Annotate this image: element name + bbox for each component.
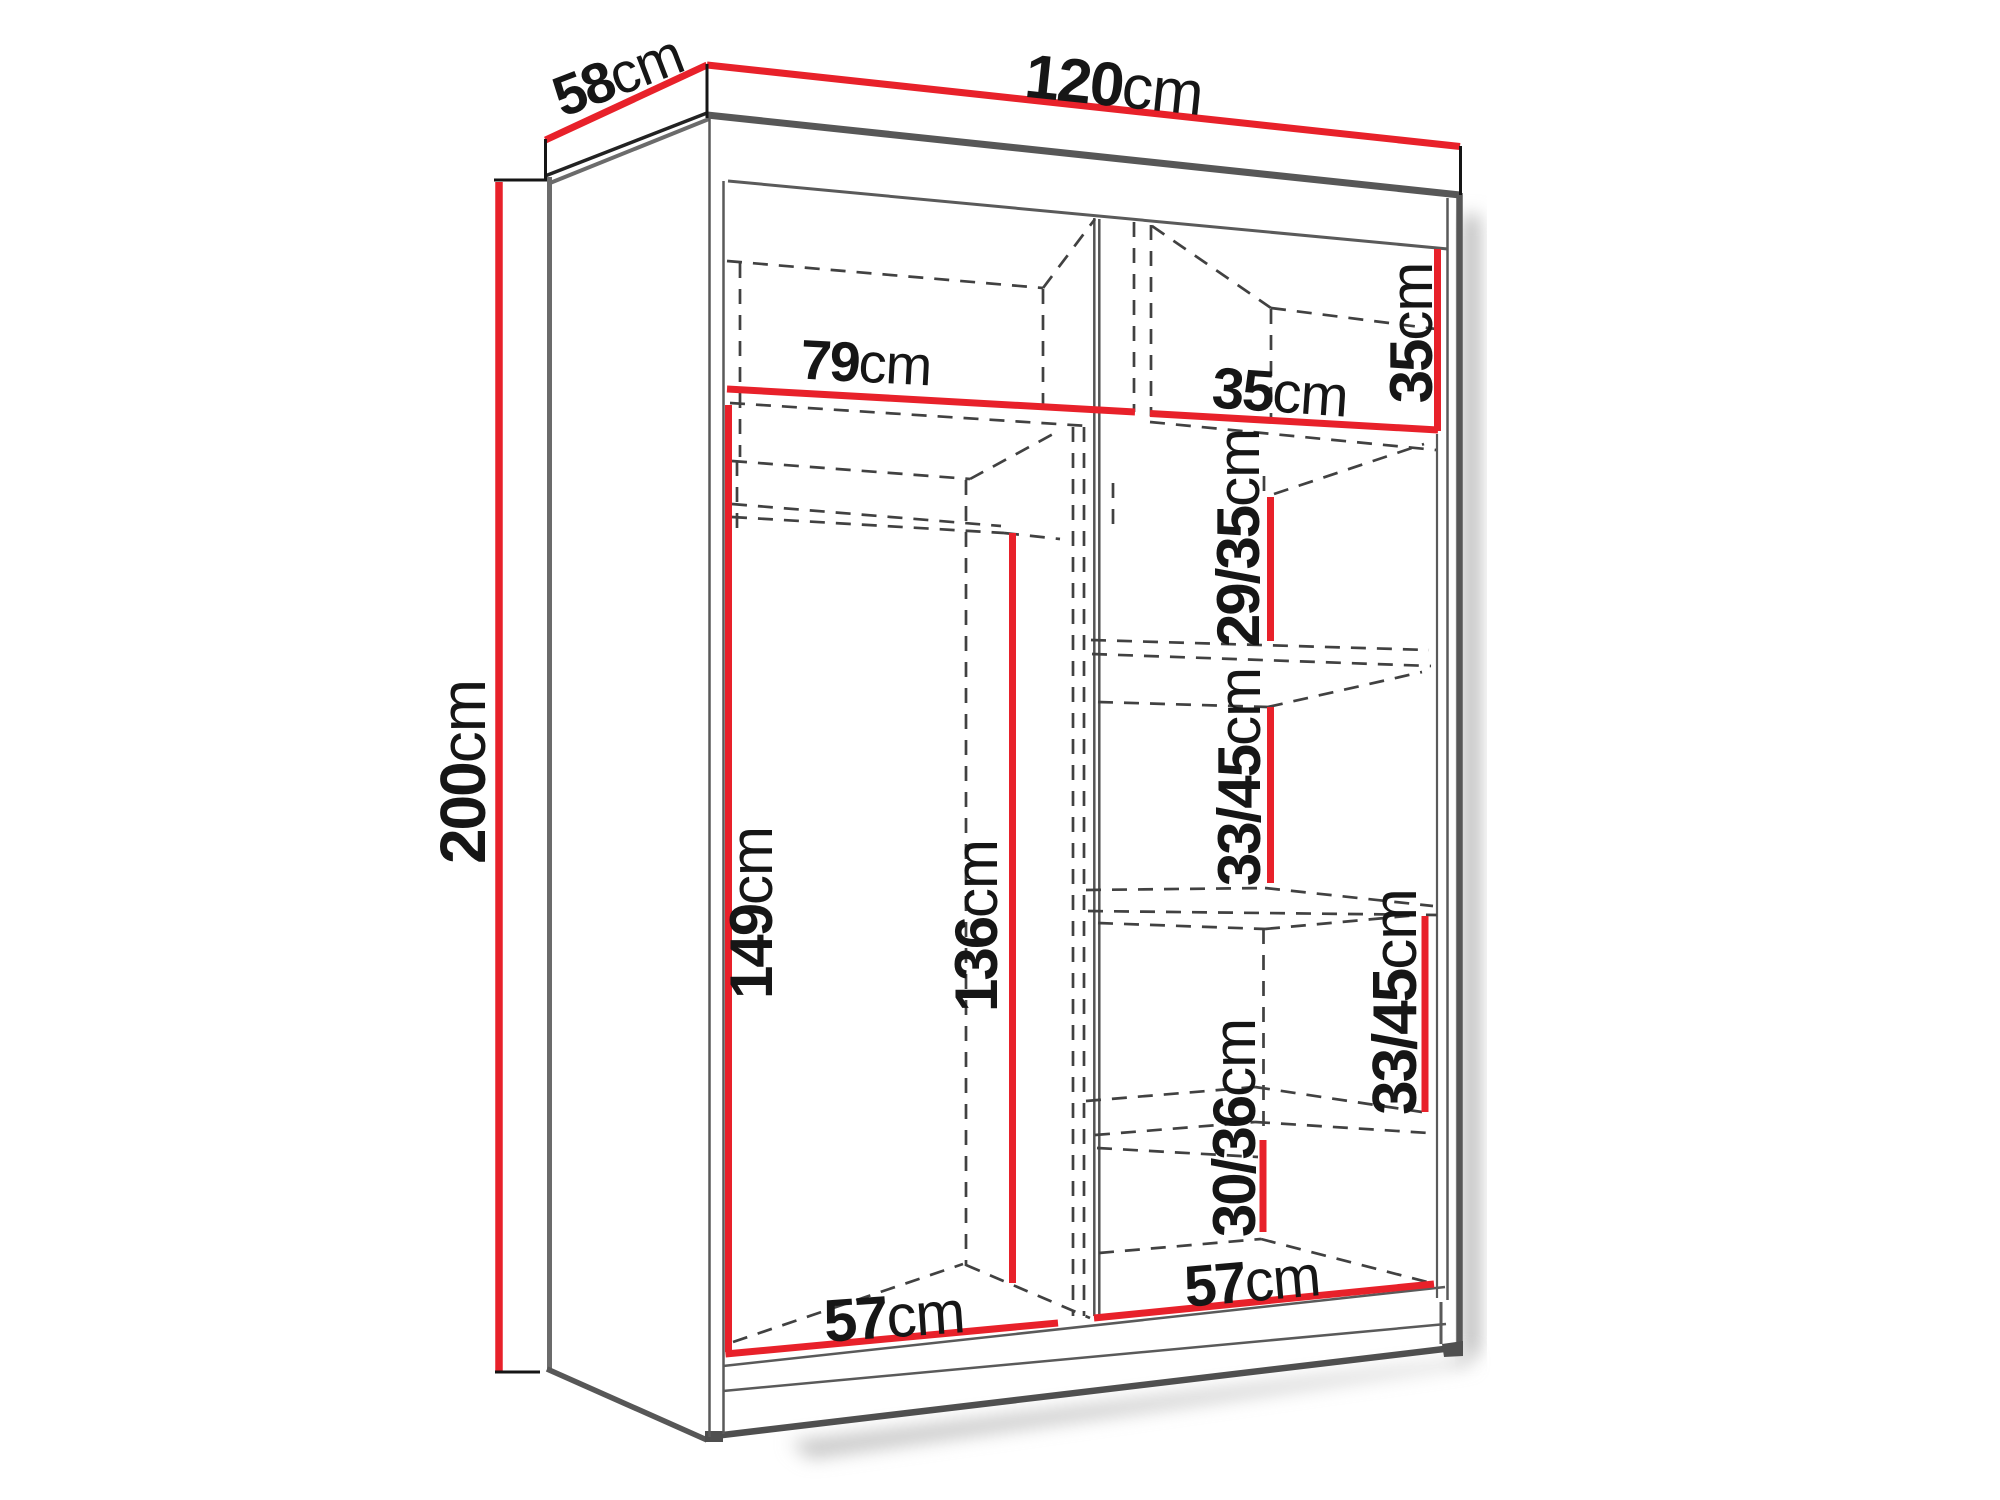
svg-text:58cm: 58cm: [544, 22, 691, 130]
svg-text:120cm: 120cm: [1022, 41, 1206, 128]
svg-text:33/45cm: 33/45cm: [1361, 889, 1430, 1115]
svg-text:57cm: 57cm: [821, 1278, 966, 1355]
svg-text:29/35cm: 29/35cm: [1205, 429, 1272, 647]
svg-text:79cm: 79cm: [799, 327, 933, 397]
svg-text:149cm: 149cm: [718, 827, 785, 999]
svg-text:33/45cm: 33/45cm: [1206, 668, 1273, 886]
svg-text:30/36cm: 30/36cm: [1201, 1019, 1268, 1237]
svg-text:35cm: 35cm: [1378, 263, 1445, 404]
svg-text:136cm: 136cm: [943, 840, 1010, 1012]
svg-text:200cm: 200cm: [427, 680, 499, 864]
svg-text:57cm: 57cm: [1182, 1243, 1323, 1320]
svg-text:35cm: 35cm: [1210, 355, 1350, 429]
